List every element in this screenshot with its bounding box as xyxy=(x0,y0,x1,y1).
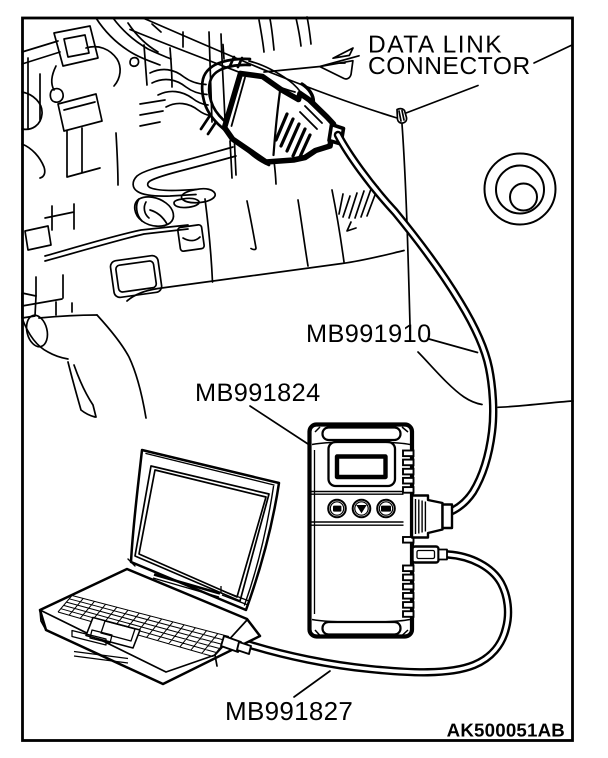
svg-text:MB991824: MB991824 xyxy=(195,379,321,407)
svg-text:MB991827: MB991827 xyxy=(225,696,353,726)
svg-text:MB991910: MB991910 xyxy=(306,320,432,348)
svg-text:CONNECTOR: CONNECTOR xyxy=(368,53,531,80)
svg-text:AK500051AB: AK500051AB xyxy=(447,720,565,741)
